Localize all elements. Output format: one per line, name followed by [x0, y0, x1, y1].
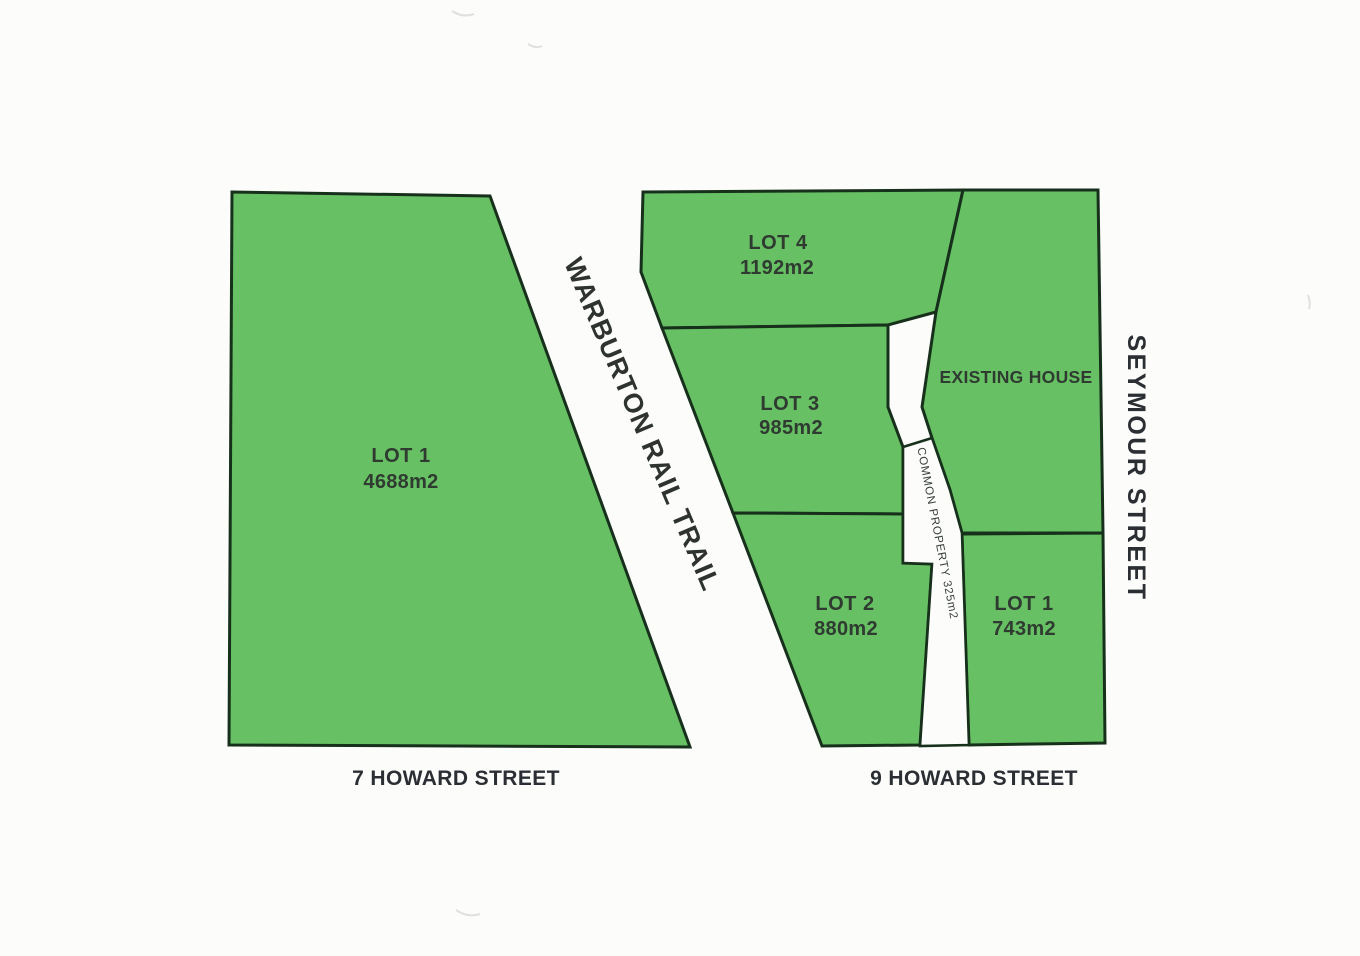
subdivision-plan-page: { "plan": { "colors": { "parcel_fill": "…	[0, 0, 1360, 956]
seymour-street-label: SEYMOUR STREET	[1122, 335, 1150, 602]
lot1-west-label: LOT 1	[371, 445, 430, 467]
lot4-area: 1192m2	[740, 257, 814, 279]
lot2-label: LOT 2	[815, 593, 874, 615]
lot3-label: LOT 3	[760, 393, 819, 415]
howard-street-9-label: 9 HOWARD STREET	[870, 767, 1078, 790]
scan-artifact	[456, 910, 480, 915]
lot1-east-area: 743m2	[992, 618, 1056, 640]
scan-artifact	[1308, 295, 1310, 309]
lot2-area: 880m2	[814, 618, 878, 640]
lot1-west-area: 4688m2	[363, 471, 438, 493]
lot1-east-label: LOT 1	[994, 593, 1053, 615]
lot4-label: LOT 4	[748, 232, 808, 254]
existing-house-label: EXISTING HOUSE	[940, 367, 1093, 387]
scan-artifact	[528, 44, 542, 47]
parcel-lot1-west	[229, 192, 690, 747]
howard-street-7-label: 7 HOWARD STREET	[352, 767, 560, 790]
scan-artifact	[452, 11, 474, 15]
lot3-area: 985m2	[759, 417, 823, 439]
plan-canvas: LOT 1 4688m2 LOT 4 1192m2 LOT 3 985m2 LO…	[0, 0, 1360, 956]
